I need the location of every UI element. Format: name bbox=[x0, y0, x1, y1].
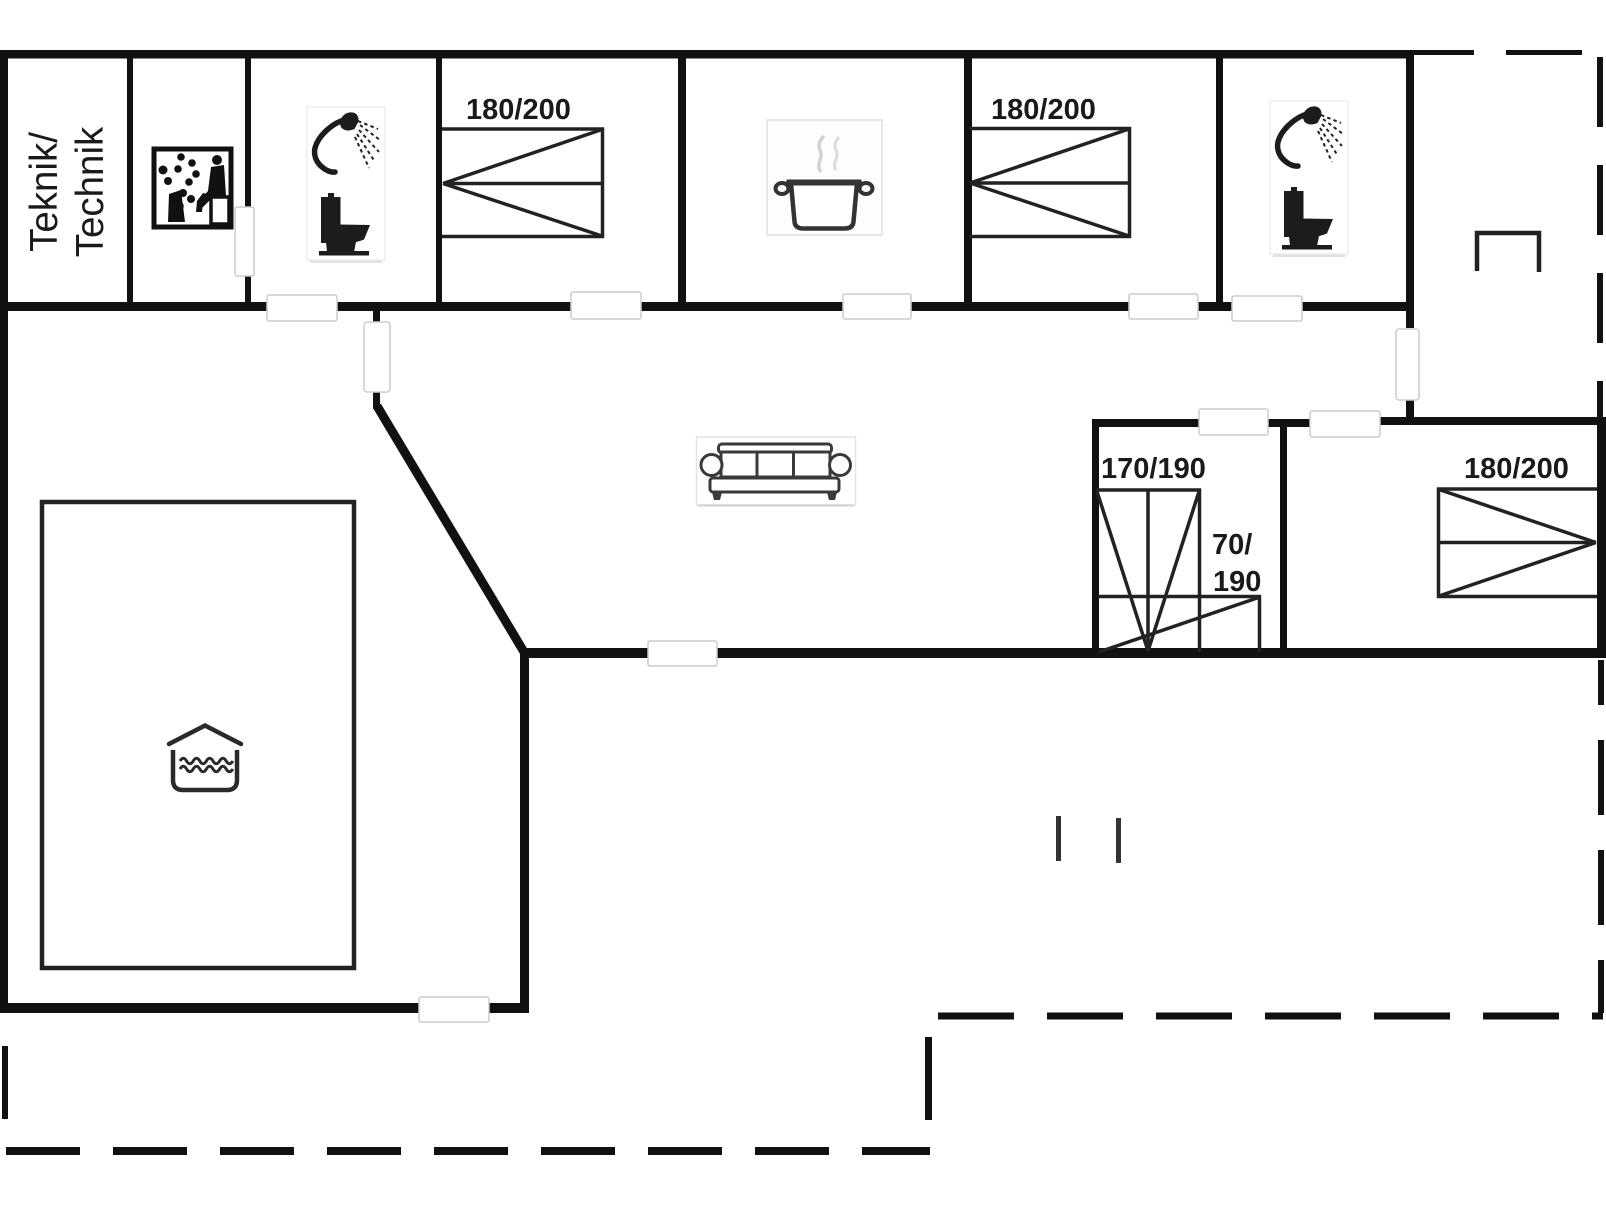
svg-text:Teknik/: Teknik/ bbox=[23, 132, 66, 252]
svg-text:Technik: Technik bbox=[69, 126, 112, 257]
svg-text:70/: 70/ bbox=[1212, 529, 1252, 561]
svg-text:180/200: 180/200 bbox=[466, 94, 571, 126]
svg-text:190: 190 bbox=[1213, 566, 1261, 598]
svg-text:180/200: 180/200 bbox=[1464, 453, 1569, 485]
svg-text:170/190: 170/190 bbox=[1101, 453, 1206, 485]
svg-text:180/200: 180/200 bbox=[991, 94, 1096, 126]
